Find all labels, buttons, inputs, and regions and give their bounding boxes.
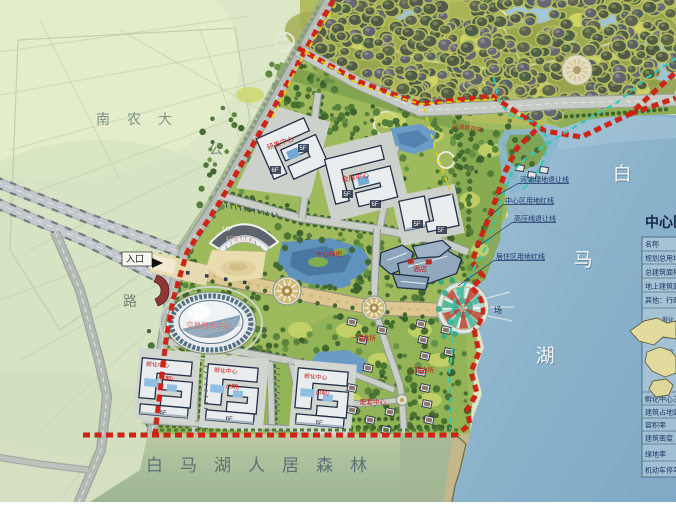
svg-text:森: 森 xyxy=(316,456,333,475)
svg-text:建筑密度: 建筑密度 xyxy=(645,434,673,443)
svg-text:(3期): (3期) xyxy=(316,389,329,397)
svg-text:白: 白 xyxy=(613,163,632,185)
svg-text:白: 白 xyxy=(146,456,163,475)
svg-text:河湖绿地退让线: 河湖绿地退让线 xyxy=(520,175,569,184)
svg-text:中心区用地红线: 中心区用地红线 xyxy=(505,196,554,205)
svg-text:5F: 5F xyxy=(300,146,307,152)
svg-text:中心绿地: 中心绿地 xyxy=(316,249,343,258)
svg-text:总建筑面积: 总建筑面积 xyxy=(645,268,676,277)
svg-text:6F: 6F xyxy=(372,202,379,208)
svg-text:6F: 6F xyxy=(315,420,323,427)
svg-text:机动车停车: 机动车停车 xyxy=(645,466,676,475)
svg-text:中心区经: 中心区经 xyxy=(645,214,676,230)
svg-text:容积率: 容积率 xyxy=(645,421,666,430)
svg-text:5F: 5F xyxy=(438,228,445,234)
svg-text:(2期): (2期) xyxy=(226,383,239,391)
svg-text:马: 马 xyxy=(574,250,593,271)
svg-text:5F: 5F xyxy=(414,222,421,228)
svg-text:人: 人 xyxy=(248,456,265,475)
svg-text:大: 大 xyxy=(158,111,172,127)
svg-text:居: 居 xyxy=(282,456,299,475)
svg-text:配套中心: 配套中心 xyxy=(360,397,387,406)
svg-text:公: 公 xyxy=(209,141,223,157)
svg-text:绿地率: 绿地率 xyxy=(645,450,666,459)
svg-text:5F: 5F xyxy=(344,192,351,198)
svg-text:2F: 2F xyxy=(188,311,196,318)
svg-text:场: 场 xyxy=(494,306,502,315)
svg-text:一期会所: 一期会所 xyxy=(350,333,377,342)
svg-text:酒店: 酒店 xyxy=(413,264,427,273)
svg-text:建筑占地面: 建筑占地面 xyxy=(645,408,676,417)
svg-text:交易展示中心: 交易展示中心 xyxy=(186,320,231,330)
svg-text:马: 马 xyxy=(180,456,197,475)
svg-text:入口: 入口 xyxy=(126,254,144,264)
svg-text:6F: 6F xyxy=(225,416,233,423)
svg-text:规划总用地: 规划总用地 xyxy=(645,254,676,263)
svg-text:南: 南 xyxy=(96,111,110,127)
svg-text:居住区用地红线: 居住区用地红线 xyxy=(496,252,545,261)
svg-text:农: 农 xyxy=(127,111,141,127)
svg-text:湖: 湖 xyxy=(214,456,231,475)
svg-text:高压线退让线: 高压线退让线 xyxy=(514,214,556,223)
svg-text:(1期): (1期) xyxy=(160,375,173,383)
svg-text:名称: 名称 xyxy=(645,240,659,249)
svg-text:6F: 6F xyxy=(272,168,279,174)
svg-text:林: 林 xyxy=(350,456,367,475)
svg-text:湖: 湖 xyxy=(536,345,555,367)
svg-text:地上建筑面积: 地上建筑面积 xyxy=(645,282,676,291)
svg-text:其他：行政: 其他：行政 xyxy=(645,296,676,305)
svg-text:行政中心: 行政中心 xyxy=(226,235,254,244)
svg-text:6F: 6F xyxy=(159,410,167,417)
svg-text:路: 路 xyxy=(123,293,137,309)
svg-text:二期会所: 二期会所 xyxy=(408,365,435,374)
svg-text:10F: 10F xyxy=(222,227,233,233)
